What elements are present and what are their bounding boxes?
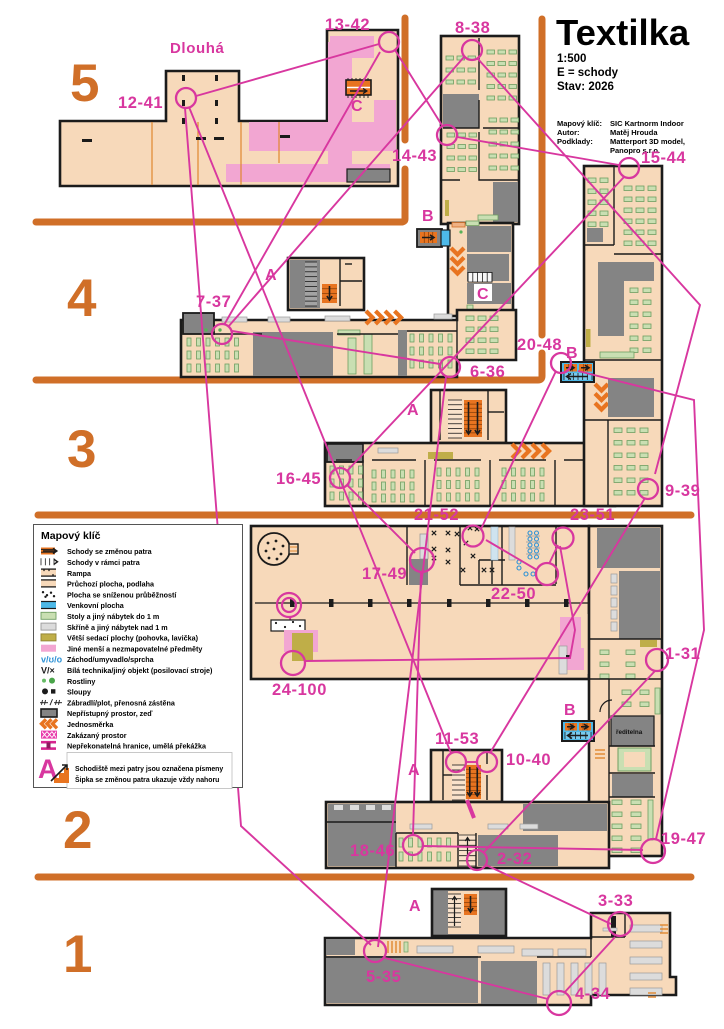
svg-text:A: A bbox=[409, 898, 421, 915]
svg-text:7-37: 7-37 bbox=[196, 293, 231, 311]
svg-text:Plocha se sníženou průběžností: Plocha se sníženou průběžností bbox=[67, 590, 177, 599]
svg-text:E = schody: E = schody bbox=[557, 67, 619, 79]
svg-text:4-34: 4-34 bbox=[575, 985, 611, 1003]
svg-text:5-35: 5-35 bbox=[366, 968, 401, 986]
svg-text:2: 2 bbox=[63, 801, 92, 860]
svg-text:19-47: 19-47 bbox=[661, 830, 706, 848]
svg-text:Průchozí plocha, podlaha: Průchozí plocha, podlaha bbox=[67, 580, 155, 589]
svg-text:2-32: 2-32 bbox=[497, 850, 532, 868]
svg-text:Bílá technika/jiný objekt (pos: Bílá technika/jiný objekt (posilovací st… bbox=[67, 666, 213, 675]
svg-text:20-48: 20-48 bbox=[517, 336, 562, 354]
svg-text:23-51: 23-51 bbox=[570, 506, 615, 524]
svg-text:Schody v rámci patra: Schody v rámci patra bbox=[67, 558, 141, 567]
svg-text:18-46: 18-46 bbox=[350, 842, 395, 860]
svg-text:22-50: 22-50 bbox=[491, 585, 536, 603]
svg-text:14-43: 14-43 bbox=[392, 147, 437, 165]
svg-text:Rostliny: Rostliny bbox=[67, 677, 95, 686]
svg-text:B: B bbox=[564, 702, 576, 719]
svg-text:3-33: 3-33 bbox=[598, 892, 633, 910]
svg-text:11-53: 11-53 bbox=[435, 730, 479, 748]
svg-text:4: 4 bbox=[67, 269, 97, 328]
svg-text:9-39: 9-39 bbox=[665, 482, 700, 500]
svg-text:8-38: 8-38 bbox=[455, 19, 490, 37]
svg-text:16-45: 16-45 bbox=[276, 470, 321, 488]
svg-text:Jiné menší a nezmapovatelné př: Jiné menší a nezmapovatelné předměty bbox=[67, 644, 202, 653]
svg-text:Skříně a jiný nábytek nad 1 m: Skříně a jiný nábytek nad 1 m bbox=[67, 623, 168, 632]
svg-text:SIC Kartnorm Indoor: SIC Kartnorm Indoor bbox=[610, 119, 684, 128]
svg-text:Rampa: Rampa bbox=[67, 569, 92, 578]
svg-text:10-40: 10-40 bbox=[506, 751, 551, 769]
svg-text:Stav: 2026: Stav: 2026 bbox=[557, 81, 614, 93]
svg-text:Stoly a jiný nábytek do 1 m: Stoly a jiný nábytek do 1 m bbox=[67, 612, 159, 621]
svg-text:Podklady:: Podklady: bbox=[557, 137, 593, 146]
svg-text:B: B bbox=[422, 208, 434, 225]
svg-text:Matterport 3D model,: Matterport 3D model, bbox=[610, 137, 685, 146]
svg-text:V/×: V/× bbox=[41, 665, 55, 675]
svg-text:ředitelna: ředitelna bbox=[616, 729, 643, 736]
svg-text:3: 3 bbox=[67, 420, 96, 479]
svg-text:Dlouhá: Dlouhá bbox=[170, 40, 224, 57]
svg-text:Sloupy: Sloupy bbox=[67, 688, 91, 697]
svg-text:Matěj Hrouda: Matěj Hrouda bbox=[610, 128, 658, 137]
svg-text:v/ʊ/o: v/ʊ/o bbox=[41, 655, 63, 665]
svg-text:21-52: 21-52 bbox=[414, 506, 459, 524]
svg-text:5: 5 bbox=[70, 54, 99, 113]
svg-text:Mapový klíč:: Mapový klíč: bbox=[557, 119, 602, 128]
svg-text:Mapový klíč: Mapový klíč bbox=[41, 530, 101, 542]
svg-text:15-44: 15-44 bbox=[641, 149, 686, 167]
svg-text:Záchod/umyvadlo/sprcha: Záchod/umyvadlo/sprcha bbox=[67, 655, 155, 664]
svg-text:1-31: 1-31 bbox=[665, 645, 700, 663]
svg-text:1: 1 bbox=[63, 925, 92, 984]
svg-text:Zakázaný prostor: Zakázaný prostor bbox=[67, 731, 127, 740]
svg-text:Textilka: Textilka bbox=[556, 12, 690, 53]
svg-text:B: B bbox=[566, 345, 578, 362]
svg-text:Šipka se změnou patra ukazuje: Šipka se změnou patra ukazuje vždy nahor… bbox=[75, 775, 219, 784]
svg-text:Nepřekonatelná hranice, umělá: Nepřekonatelná hranice, umělá překážka bbox=[67, 742, 207, 751]
svg-text:Schody se změnou patra: Schody se změnou patra bbox=[67, 547, 153, 556]
svg-text:1:500: 1:500 bbox=[557, 53, 586, 65]
svg-text:C: C bbox=[477, 286, 489, 303]
svg-text:12-41: 12-41 bbox=[118, 94, 163, 112]
svg-text:Autor:: Autor: bbox=[557, 128, 580, 137]
svg-text:6-36: 6-36 bbox=[470, 363, 505, 381]
svg-text:17-49: 17-49 bbox=[362, 565, 407, 583]
svg-text:Větší sedací plochy (pohovka,: Větší sedací plochy (pohovka, lavička) bbox=[67, 634, 199, 643]
svg-text:24-100: 24-100 bbox=[272, 681, 327, 699]
svg-text:13-42: 13-42 bbox=[325, 16, 370, 34]
svg-text:Venkovní plocha: Venkovní plocha bbox=[67, 601, 125, 610]
svg-text:Nepřístupný prostor, zeď: Nepřístupný prostor, zeď bbox=[67, 709, 153, 718]
svg-text:Schodiště mezi patry jsou ozna: Schodiště mezi patry jsou označena písme… bbox=[75, 766, 223, 773]
svg-text:Jednosměrka: Jednosměrka bbox=[67, 720, 114, 729]
svg-text:Zábradlí/plot, přenosná zástěn: Zábradlí/plot, přenosná zástěna bbox=[67, 698, 176, 707]
